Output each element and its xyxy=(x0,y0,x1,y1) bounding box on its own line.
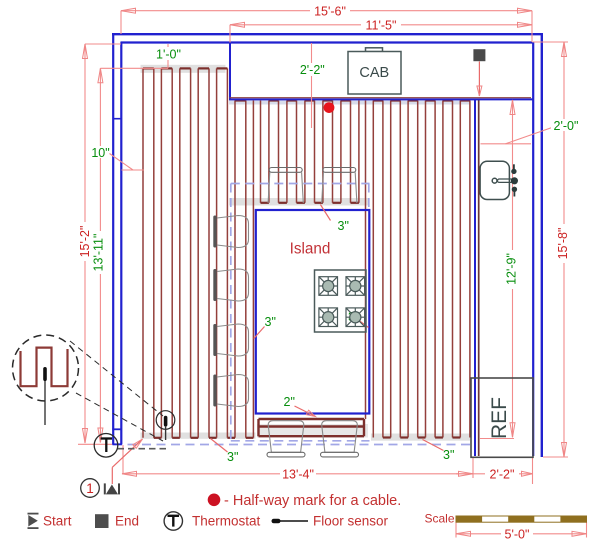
svg-text:13'-4": 13'-4" xyxy=(282,468,314,482)
svg-text:13'-11": 13'-11" xyxy=(92,234,106,272)
svg-text:2'-2": 2'-2" xyxy=(300,63,325,77)
svg-text:2": 2" xyxy=(284,395,295,409)
svg-text:11'-5": 11'-5" xyxy=(366,19,397,33)
svg-text:3": 3" xyxy=(443,448,454,462)
svg-text:15'-6": 15'-6" xyxy=(314,5,346,19)
svg-text:1: 1 xyxy=(86,481,94,496)
svg-text:12'-9": 12'-9" xyxy=(505,253,519,285)
svg-text:15'-2": 15'-2" xyxy=(78,226,92,258)
svg-text:Island: Island xyxy=(290,241,331,258)
svg-text:- Half-way mark for a cable.: - Half-way mark for a cable. xyxy=(224,493,401,509)
svg-text:Floor sensor: Floor sensor xyxy=(313,514,389,529)
svg-text:3": 3" xyxy=(265,315,276,329)
svg-text:2'-2": 2'-2" xyxy=(490,468,515,482)
svg-text:Scale: Scale xyxy=(425,512,455,526)
svg-text:2'-0": 2'-0" xyxy=(554,119,579,133)
svg-text:End: End xyxy=(115,514,139,529)
svg-text:3": 3" xyxy=(227,450,238,464)
svg-text:REF: REF xyxy=(488,397,511,439)
svg-text:CAB: CAB xyxy=(359,65,389,81)
svg-text:10": 10" xyxy=(91,146,109,160)
svg-text:1'-0": 1'-0" xyxy=(156,48,181,62)
svg-text:5'-0": 5'-0" xyxy=(505,528,530,542)
svg-text:3": 3" xyxy=(338,219,349,233)
svg-text:15'-8": 15'-8" xyxy=(556,228,570,260)
svg-text:Thermostat: Thermostat xyxy=(192,514,261,529)
svg-text:Start: Start xyxy=(43,514,72,529)
